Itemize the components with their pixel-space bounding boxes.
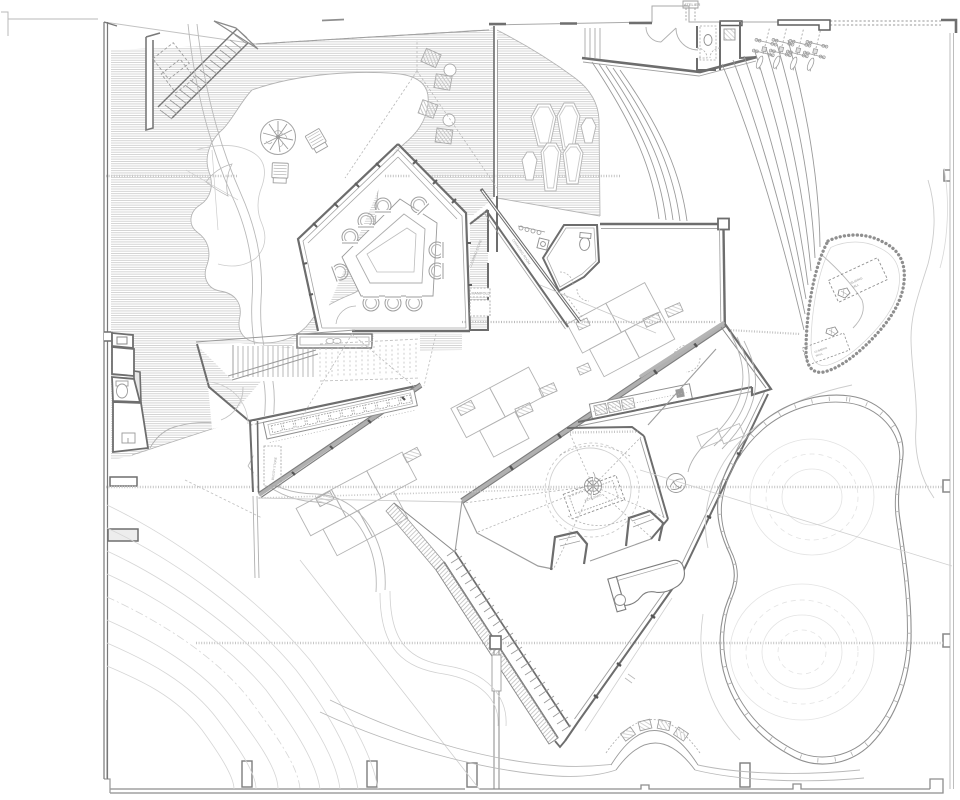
svg-text:ATELIER: ATELIER [684, 2, 700, 7]
svg-text:MANIFOLD: MANIFOLD [472, 292, 491, 296]
